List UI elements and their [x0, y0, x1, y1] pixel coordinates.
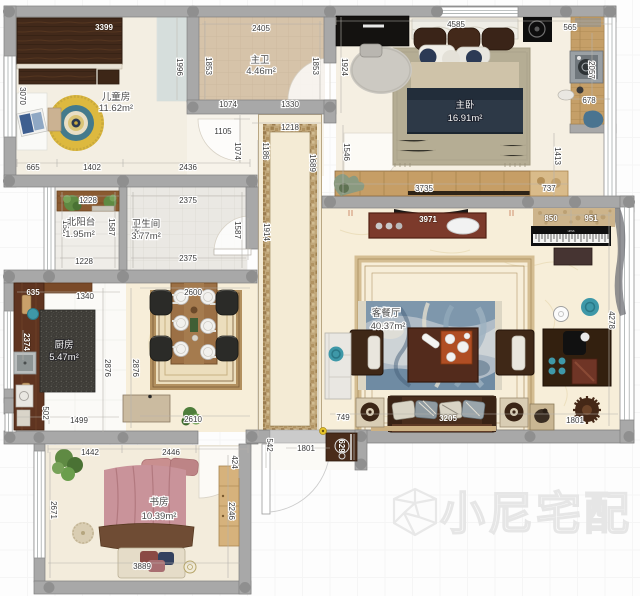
svg-text:678: 678: [582, 96, 596, 105]
svg-text:3889: 3889: [133, 562, 151, 571]
svg-text:4.46m²: 4.46m²: [246, 66, 276, 77]
svg-text:2876: 2876: [103, 359, 112, 377]
svg-text:1924: 1924: [340, 58, 349, 76]
svg-text:主卧: 主卧: [455, 99, 475, 111]
svg-text:北阳台: 北阳台: [67, 216, 96, 228]
svg-text:1801: 1801: [297, 444, 315, 453]
svg-text:542: 542: [265, 438, 274, 452]
svg-text:4585: 4585: [447, 20, 465, 29]
svg-text:1402: 1402: [83, 163, 101, 172]
svg-text:4278: 4278: [607, 311, 616, 329]
svg-text:1228: 1228: [79, 196, 97, 205]
svg-text:小尼宅配: 小尼宅配: [440, 488, 632, 539]
svg-text:1442: 1442: [81, 448, 99, 457]
svg-text:卫生间: 卫生间: [132, 218, 161, 230]
svg-text:1689: 1689: [308, 154, 317, 172]
svg-text:2436: 2436: [179, 163, 197, 172]
svg-text:951: 951: [584, 214, 598, 223]
svg-text:1996: 1996: [175, 58, 184, 76]
svg-text:2600: 2600: [184, 288, 202, 297]
svg-text:10.39m²: 10.39m²: [142, 511, 177, 522]
svg-text:厨房: 厨房: [54, 339, 73, 351]
svg-text:2246: 2246: [227, 502, 236, 520]
svg-text:1074: 1074: [219, 100, 237, 109]
svg-text:1801: 1801: [566, 416, 584, 425]
svg-text:424: 424: [230, 455, 239, 469]
svg-text:40.37m²: 40.37m²: [371, 321, 406, 332]
svg-text:1105: 1105: [214, 127, 232, 136]
svg-text:3.77m²: 3.77m²: [131, 231, 161, 242]
svg-text:1546: 1546: [342, 143, 351, 161]
svg-text:737: 737: [542, 184, 556, 193]
svg-text:主卫: 主卫: [250, 54, 270, 66]
svg-text:客餐厅: 客餐厅: [372, 307, 401, 319]
svg-text:1218: 1218: [281, 123, 299, 132]
svg-text:2374: 2374: [22, 333, 31, 351]
svg-text:5.47m²: 5.47m²: [49, 352, 79, 363]
svg-text:1587: 1587: [107, 218, 116, 236]
svg-text:2375: 2375: [179, 196, 197, 205]
svg-text:11.62m²: 11.62m²: [99, 103, 133, 114]
svg-text:1587: 1587: [233, 221, 242, 239]
svg-text:2375: 2375: [179, 254, 197, 263]
svg-text:1186: 1186: [261, 142, 270, 160]
svg-text:635: 635: [26, 288, 40, 297]
svg-text:1914: 1914: [262, 223, 271, 241]
svg-text:书房: 书房: [149, 496, 168, 508]
svg-text:2876: 2876: [131, 359, 140, 377]
svg-text:1853: 1853: [311, 57, 320, 75]
svg-text:629: 629: [337, 439, 346, 453]
svg-text:uma: uma: [568, 229, 575, 233]
svg-text:665: 665: [26, 163, 40, 172]
svg-text:3070: 3070: [18, 87, 27, 105]
svg-text:1228: 1228: [75, 257, 93, 266]
svg-text:2405: 2405: [252, 24, 270, 33]
svg-text:2057: 2057: [587, 61, 596, 79]
svg-text:2610: 2610: [184, 415, 202, 424]
svg-text:1499: 1499: [70, 416, 88, 425]
svg-text:3971: 3971: [419, 215, 437, 224]
svg-text:850: 850: [544, 214, 558, 223]
svg-text:3205: 3205: [439, 414, 457, 423]
svg-text:3399: 3399: [95, 23, 113, 32]
svg-text:16.91m²: 16.91m²: [448, 113, 483, 124]
svg-text:2446: 2446: [162, 448, 180, 457]
svg-text:2671: 2671: [49, 501, 58, 519]
svg-text:1853: 1853: [204, 57, 213, 75]
svg-text:1074: 1074: [233, 142, 242, 160]
svg-text:3735: 3735: [415, 184, 433, 193]
svg-text:749: 749: [336, 413, 350, 422]
svg-text:565: 565: [563, 23, 577, 32]
svg-text:1.95m²: 1.95m²: [65, 229, 95, 240]
svg-text:1413: 1413: [553, 147, 562, 165]
svg-text:502: 502: [41, 406, 50, 420]
svg-text:1340: 1340: [76, 292, 94, 301]
svg-text:1330: 1330: [281, 100, 299, 109]
svg-text:儿童房: 儿童房: [102, 91, 131, 103]
